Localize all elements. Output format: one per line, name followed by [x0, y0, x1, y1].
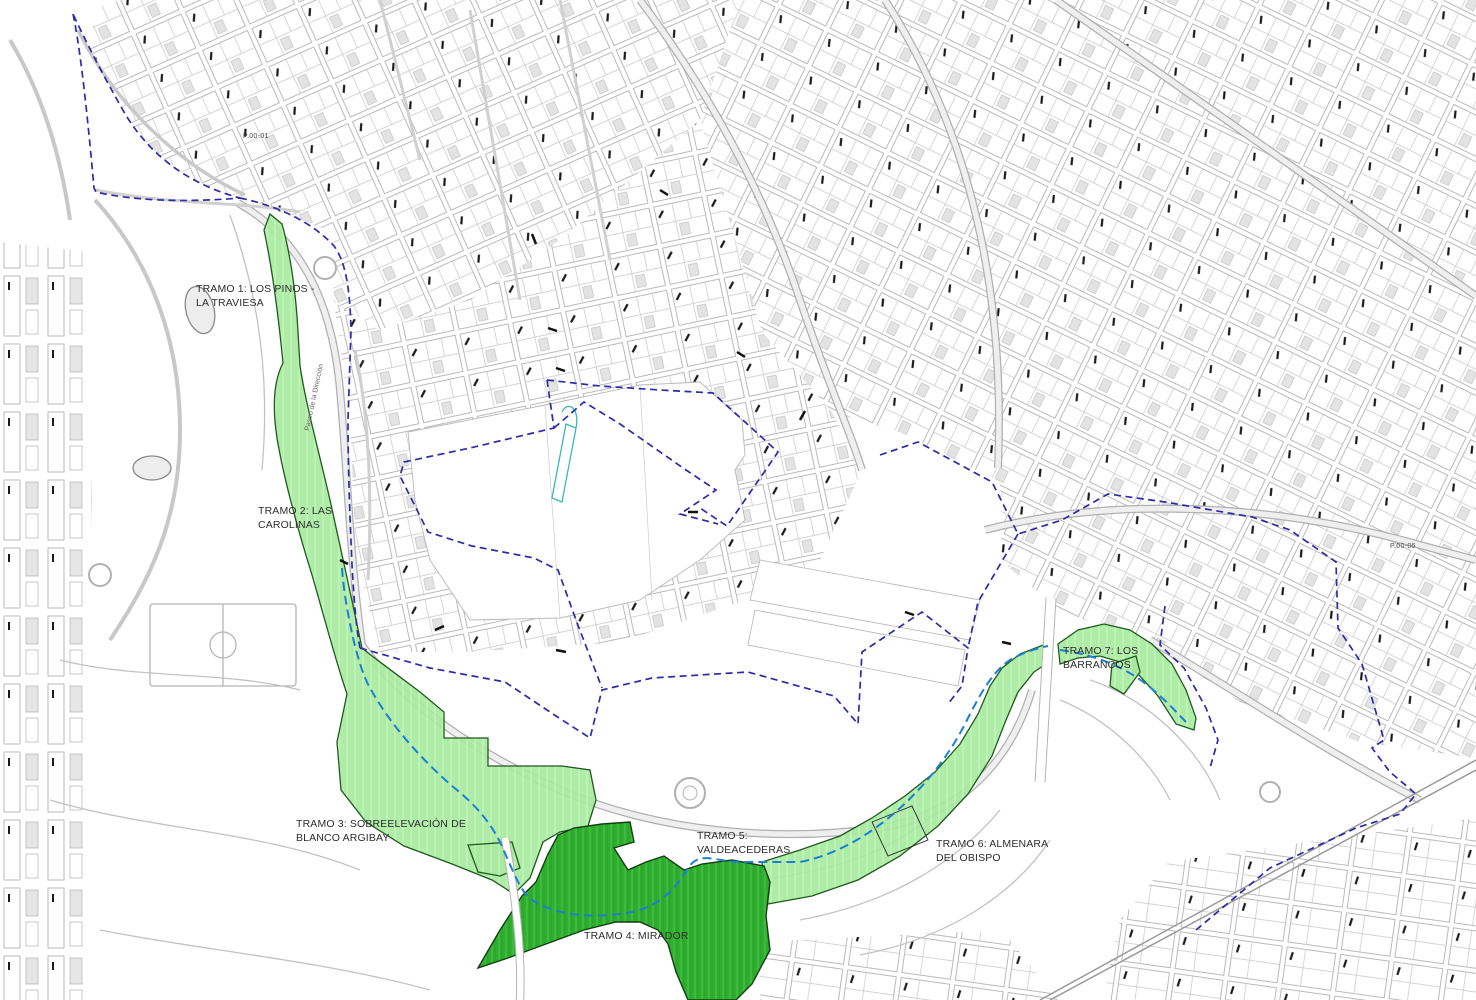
label-tramo-2: TRAMO 2: LAS CAROLINAS	[258, 505, 350, 532]
label-tramo-4: TRAMO 4: MIRADOR	[584, 930, 764, 944]
label-tramo-7: TRAMO 7: LOS BARRANCOS	[1063, 645, 1158, 672]
plan-code-1: P.00-01	[243, 133, 269, 140]
label-tramo-5: TRAMO 5: VALDEACEDERAS	[697, 830, 792, 857]
label-tramo-3: TRAMO 3: SOBREELEVACIÓN DE BLANCO ARGIBA…	[296, 818, 471, 845]
plan-map: TRAMO 1: LOS PINOS - LA TRAVIESA TRAMO 2…	[0, 0, 1476, 1000]
label-tramo-6: TRAMO 6: ALMENARA DEL OBISPO	[936, 838, 1056, 865]
plan-code-2: P.00-06	[1390, 543, 1416, 550]
label-tramo-1: TRAMO 1: LOS PINOS - LA TRAVIESA	[196, 283, 324, 310]
